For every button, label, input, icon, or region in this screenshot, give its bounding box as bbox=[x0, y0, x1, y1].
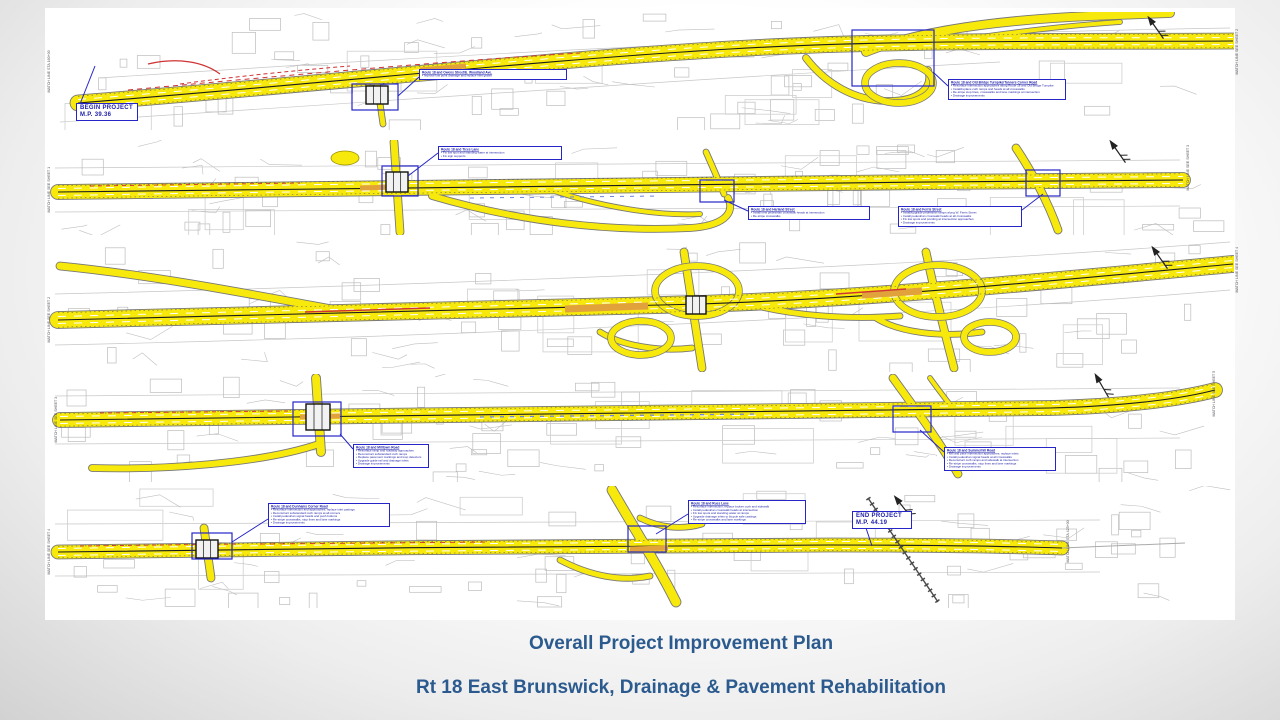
callout-bullet: • Drainage improvements bbox=[947, 466, 1056, 469]
callout-s5-dunhams: Route 18 and Dunhams Corner Road• Resurf… bbox=[268, 503, 390, 527]
callout-s4-summerhill: Route 18 and Summerhill Road• Mill and p… bbox=[944, 447, 1056, 471]
begin-project-milepost: M.P. 39.36 bbox=[80, 112, 134, 119]
matchline-label: MATCH LINE SEE SHEET 3 bbox=[54, 407, 58, 443]
matchline-label: MATCH LINE SEE SHEET 2 bbox=[1235, 39, 1239, 75]
callout-s4-milltown: Route 18 and Milltown Road• Resurface ra… bbox=[353, 444, 429, 468]
callout-bullet: • Drainage improvements bbox=[271, 522, 390, 525]
matchline-label: MATCH LINE SEE SHEET 4 bbox=[1235, 257, 1239, 293]
callout-bullet: • Drainage improvements bbox=[951, 94, 1066, 97]
callout-bullet: • Re-stripe crosswalks bbox=[751, 215, 870, 218]
callout-bullet: • Fix sign supports bbox=[441, 155, 562, 158]
matchline-label: MATCH LINE SEE SHEET 5 bbox=[1212, 381, 1216, 417]
slide: Route 18 and Owens Street/E. Woodland Av… bbox=[0, 0, 1280, 720]
callout-bullet: • Improve low point drainage and replace… bbox=[422, 75, 567, 78]
end-project-milepost: M.P. 44.19 bbox=[856, 520, 908, 527]
matchline-label: MATCH LINE SEE SHEET 2 bbox=[47, 307, 51, 343]
callout-bullet: • Drainage improvements bbox=[901, 221, 1022, 224]
end-project-marker: END PROJECT M.P. 44.19 bbox=[852, 511, 912, 529]
begin-project-label: BEGIN PROJECT bbox=[80, 105, 134, 112]
callout-s1-woodland: Route 18 and Owens Street/E. Woodland Av… bbox=[419, 69, 567, 80]
begin-project-marker: BEGIN PROJECT M.P. 39.36 bbox=[76, 103, 138, 121]
annotation-layer: Route 18 and Owens Street/E. Woodland Av… bbox=[0, 0, 1280, 720]
slide-title-line1: Overall Project Improvement Plan bbox=[86, 633, 1276, 655]
end-project-label: END PROJECT bbox=[856, 513, 908, 520]
matchline-label: MATCH LINE SEE SHEET 1 bbox=[47, 177, 51, 213]
callout-bullet: • Re-stripe crosswalks and lane markings bbox=[691, 519, 806, 522]
matchline-label: MATCH LINE STA 160+00 bbox=[47, 57, 51, 93]
callout-s1-old-bridge: Route 18 and Old Bridge Turnpike/Tanners… bbox=[948, 79, 1066, 100]
callout-s5-rues: Route 18 and Rues Lane• Resurface inters… bbox=[688, 500, 806, 524]
callout-bullet: • Drainage improvements bbox=[356, 463, 429, 466]
callout-s2-harland: Route 18 and Harland Street• Install new… bbox=[748, 206, 870, 220]
callout-s2-tices: Route 18 and Tices Lane• Fix low spot an… bbox=[438, 146, 562, 160]
matchline-label: MATCH LINE STA 425+00 bbox=[1066, 527, 1070, 563]
callout-s2-ferris: Route 18 and Ferris Street• Install/upgr… bbox=[898, 206, 1022, 227]
matchline-label: MATCH LINE SEE SHEET 4 bbox=[47, 539, 51, 575]
slide-title-line2: Rt 18 East Brunswick, Drainage & Pavemen… bbox=[86, 677, 1276, 699]
matchline-label: MATCH LINE SEE SHEET 3 bbox=[1186, 155, 1190, 191]
